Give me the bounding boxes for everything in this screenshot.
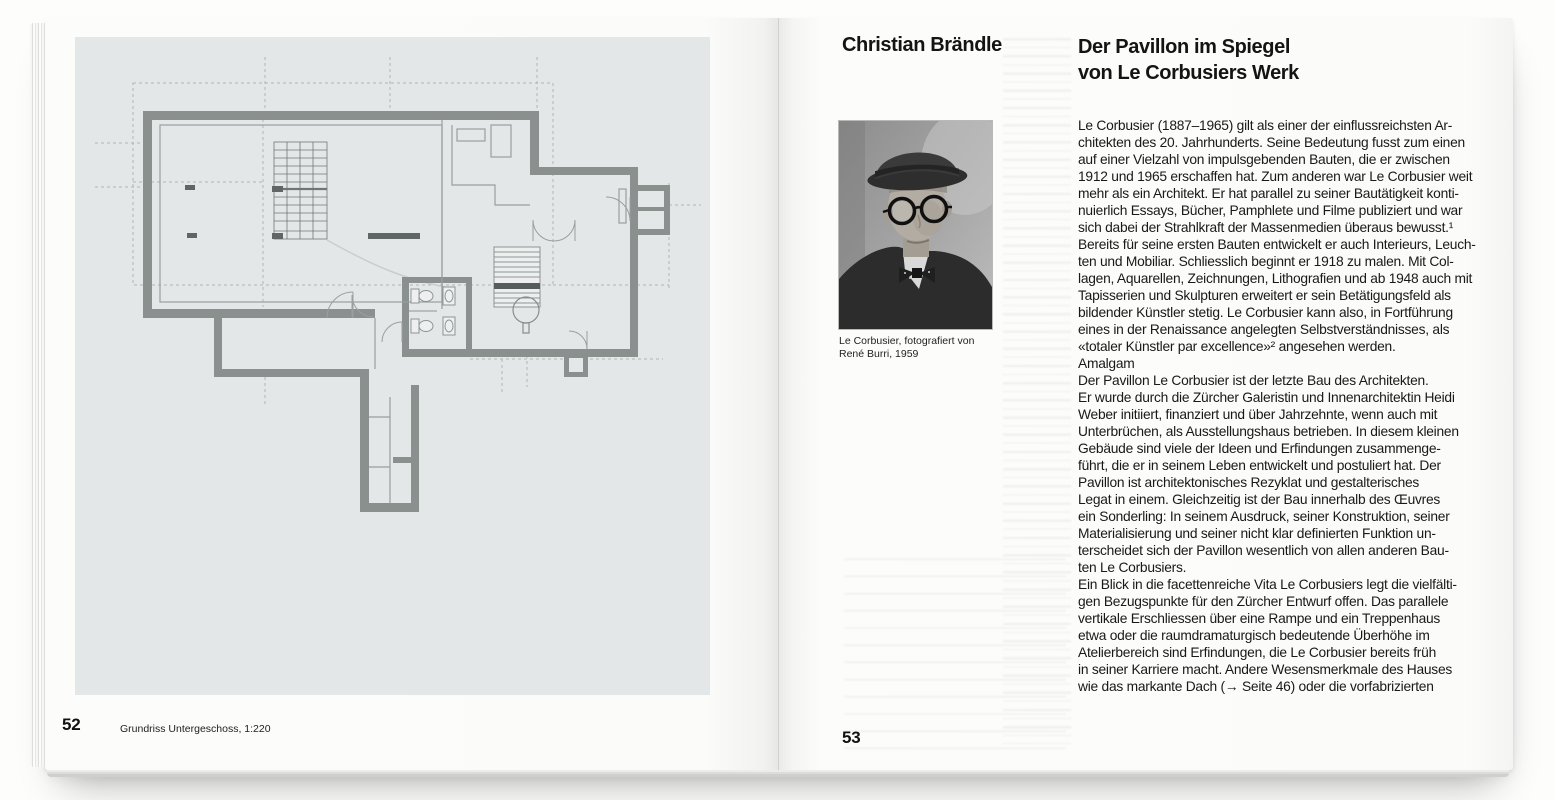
bleed-through-text-column	[1003, 38, 1071, 744]
left-page: 52 Grundriss Untergeschoss, 1:220	[45, 18, 778, 770]
floor-plan-drawing	[75, 37, 710, 695]
door-swings	[327, 197, 630, 349]
paragraph-2: Der Pavillon Le Corbusier ist der letzte…	[1078, 372, 1510, 576]
stairs	[494, 247, 540, 307]
le-corbusier-photo	[839, 121, 992, 329]
portrait-illustration	[839, 121, 992, 329]
book-spread-photo: 52 Grundriss Untergeschoss, 1:220 Christ…	[0, 0, 1555, 800]
page-number: 52	[62, 715, 81, 735]
right-page: Christian Brändle Der Pavillon im Spiege…	[778, 18, 1513, 770]
lens-glint	[892, 201, 912, 221]
page-number: 53	[842, 728, 861, 748]
book-bottom-edge	[47, 770, 1509, 777]
bleed-through-text-block	[844, 558, 1066, 763]
author-name: Christian Brändle	[842, 34, 1002, 57]
open-book: 52 Grundriss Untergeschoss, 1:220 Christ…	[45, 18, 1513, 770]
floor-plan-figure	[75, 37, 710, 695]
shelving-grid	[272, 142, 327, 239]
section-heading: Amalgam	[1078, 355, 1510, 372]
walls	[143, 111, 670, 512]
article-title: Der Pavillon im Spiegel von Le Corbusier…	[1078, 34, 1299, 86]
plan-caption: Grundriss Untergeschoss, 1:220	[120, 723, 271, 735]
paragraph-1: Le Corbusier (1887–1965) gilt als einer …	[1078, 117, 1510, 355]
paragraph-3: Ein Blick in die facettenreiche Vita Le …	[1078, 576, 1510, 695]
body-text-column: Le Corbusier (1887–1965) gilt als einer …	[1078, 117, 1510, 695]
exterior-stair-inner	[569, 358, 583, 372]
page-stack-edge	[30, 23, 45, 767]
bathroom-fixtures	[409, 287, 455, 335]
photo-caption: Le Corbusier, fotografiert von René Burr…	[839, 335, 974, 361]
